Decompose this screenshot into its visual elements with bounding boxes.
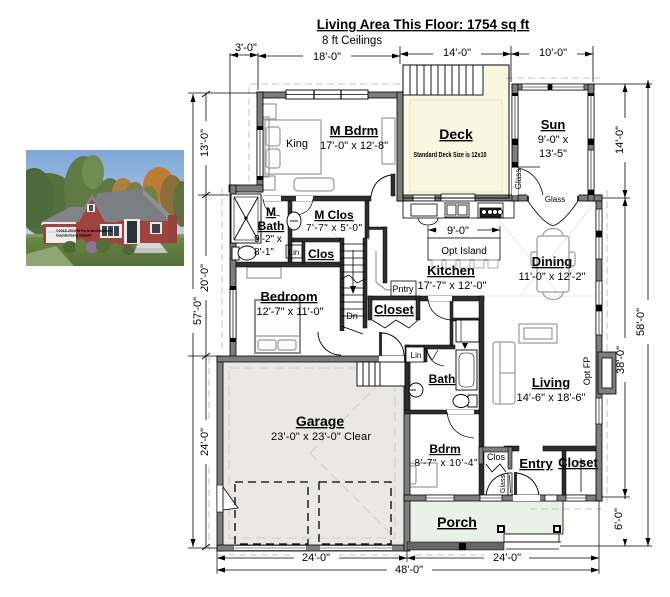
svg-text:9'-2" x: 9'-2" x <box>254 234 282 245</box>
svg-text:9'-0" x: 9'-0" x <box>538 134 569 146</box>
svg-text:Sun: Sun <box>541 117 566 132</box>
svg-text:23'-0" x 23'-0" Clear: 23'-0" x 23'-0" Clear <box>271 431 371 443</box>
svg-text:48'-0": 48'-0" <box>395 564 423 576</box>
svg-text:Glass: Glass <box>545 195 565 204</box>
svg-text:Bath: Bath <box>429 372 456 386</box>
svg-text:12'-7" x 11'-0": 12'-7" x 11'-0" <box>257 306 324 318</box>
svg-text:Pntry: Pntry <box>392 284 414 294</box>
svg-text:Porch: Porch <box>437 514 477 530</box>
svg-text:Dn: Dn <box>346 311 358 321</box>
svg-text:9'-0": 9'-0" <box>447 225 469 237</box>
svg-text:Deck: Deck <box>439 126 473 142</box>
svg-text:24'-0": 24'-0" <box>302 552 330 564</box>
svg-text:57'-0": 57'-0" <box>192 297 204 325</box>
svg-text:10'-0": 10'-0" <box>539 47 567 59</box>
svg-text:11'-0" x 12'-2": 11'-0" x 12'-2" <box>519 271 586 283</box>
svg-text:Clos: Clos <box>487 452 506 462</box>
svg-text:6'-0": 6'-0" <box>613 508 625 530</box>
svg-text:Clos: Clos <box>308 247 334 261</box>
svg-text:Closet: Closet <box>374 302 414 317</box>
svg-text:14'-0": 14'-0" <box>614 126 626 154</box>
svg-text:8 ft Ceilings: 8 ft Ceilings <box>322 35 382 47</box>
svg-text:Opt FP: Opt FP <box>582 357 592 386</box>
svg-text:King: King <box>286 138 308 150</box>
svg-text:Lin: Lin <box>411 351 422 360</box>
svg-text:20'-0": 20'-0" <box>199 264 211 292</box>
svg-text:Living: Living <box>532 375 570 390</box>
svg-text:Garage: Garage <box>296 413 344 429</box>
svg-text:Entry: Entry <box>519 456 553 471</box>
svg-text:Lin: Lin <box>289 248 300 257</box>
svg-text:17'-0" x 12'-8": 17'-0" x 12'-8" <box>320 140 388 152</box>
svg-text:13'-5": 13'-5" <box>539 148 567 160</box>
svg-text:38'-0": 38'-0" <box>615 346 627 374</box>
svg-text:©2018-2019 M Form Architecture: ©2018-2019 M Form Architecture <box>56 229 112 233</box>
svg-text:17'-7" x 12'-0": 17'-7" x 12'-0" <box>418 280 487 292</box>
svg-text:24'-0": 24'-0" <box>199 428 211 456</box>
svg-text:Living Area This Floor: 1754 s: Living Area This Floor: 1754 sq ft <box>317 17 530 32</box>
svg-text:Glass: Glass <box>514 169 523 189</box>
svg-text:Closet: Closet <box>558 455 598 470</box>
svg-text:8'-7" x 10'-4": 8'-7" x 10'-4" <box>415 458 478 469</box>
svg-text:Bdrm: Bdrm <box>429 442 460 456</box>
svg-text:Kitchen: Kitchen <box>427 263 475 278</box>
svg-text:14'-6" x 18'-6": 14'-6" x 18'-6" <box>517 392 586 404</box>
svg-text:8'-1": 8'-1" <box>254 247 274 258</box>
svg-text:Glass: Glass <box>500 475 507 493</box>
svg-text:Guystenberg Glaudif: Guystenberg Glaudif <box>56 234 92 238</box>
svg-text:3'-0": 3'-0" <box>235 42 257 54</box>
svg-text:7'-7" x 5'-0": 7'-7" x 5'-0" <box>306 223 362 234</box>
svg-text:Opt Island: Opt Island <box>441 246 487 257</box>
svg-text:18'-0": 18'-0" <box>313 51 341 63</box>
svg-text:24'-0": 24'-0" <box>493 552 521 564</box>
svg-text:M Clos: M Clos <box>314 208 354 222</box>
svg-text:M Bdrm: M Bdrm <box>330 123 378 138</box>
svg-text:13'-0": 13'-0" <box>199 129 211 157</box>
svg-text:Standard Deck Size is 12x10: Standard Deck Size is 12x10 <box>414 150 487 159</box>
svg-text:M: M <box>266 205 276 219</box>
svg-text:Dining: Dining <box>532 254 572 269</box>
svg-text:14'-0": 14'-0" <box>443 47 471 59</box>
svg-text:58'-0": 58'-0" <box>635 308 647 336</box>
svg-text:Bedroom: Bedroom <box>260 289 317 304</box>
svg-text:Bath: Bath <box>258 219 285 233</box>
